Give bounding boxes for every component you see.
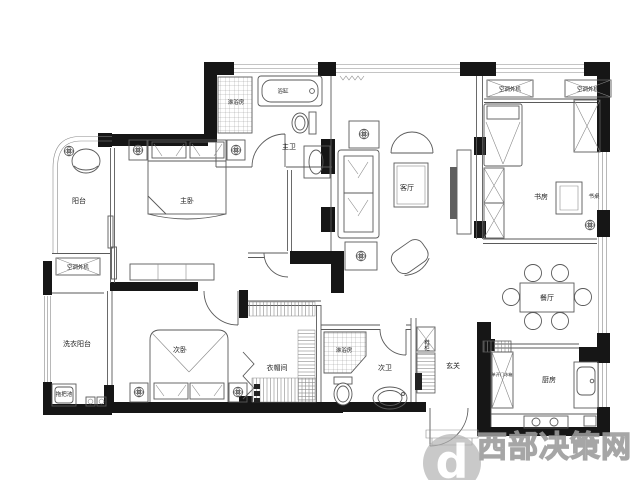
bathtub-drain-icon xyxy=(310,89,315,94)
label-bathtub: 浴缸 xyxy=(277,87,289,95)
label-cloakroom: 衣帽间 xyxy=(267,363,288,372)
living-room xyxy=(338,121,471,281)
window-balcony xyxy=(53,137,112,254)
label-desk: 书桌 xyxy=(588,192,600,200)
faucet-icon xyxy=(402,393,405,396)
flower-icon xyxy=(359,129,369,139)
label-fridge: 单开门冰箱 xyxy=(492,371,513,378)
toilet-tank xyxy=(309,112,316,134)
watermark-text: 西部决策网 xyxy=(477,430,632,465)
faucet-icon xyxy=(590,379,594,383)
label-ac-unit-2: 空调外机 xyxy=(577,85,600,93)
watermark-logo-letter: d xyxy=(436,435,469,480)
label-second-bath: 次卫 xyxy=(378,363,392,372)
burner-icon xyxy=(532,418,540,426)
stove xyxy=(524,416,568,428)
pillow xyxy=(190,383,224,399)
flower-icon xyxy=(233,387,243,397)
flower-icon xyxy=(356,251,366,261)
laundry-balcony xyxy=(52,258,106,406)
dining-chair xyxy=(525,265,542,282)
window-bath-top xyxy=(234,65,318,73)
balcony xyxy=(64,146,100,173)
cloakroom xyxy=(249,302,316,403)
master-bedroom-door xyxy=(264,253,288,277)
label-master-bath: 主卫 xyxy=(282,142,296,151)
dining-chair xyxy=(525,313,542,330)
pillow xyxy=(154,383,188,399)
label-kitchen: 厨房 xyxy=(542,375,556,384)
plant-icon xyxy=(64,146,74,156)
plant-icon xyxy=(585,220,595,230)
hanging-rail xyxy=(249,302,315,316)
window-study-right xyxy=(599,152,607,210)
window-study-top xyxy=(496,65,584,73)
bed-foot xyxy=(148,214,226,219)
window-living-top xyxy=(336,65,460,73)
second-bathroom xyxy=(324,332,407,409)
dresser xyxy=(130,264,214,280)
walls xyxy=(43,62,610,436)
second-bath-door xyxy=(380,329,406,355)
curtain-squiggle xyxy=(340,76,364,80)
armchair xyxy=(391,132,433,153)
label-master-bedroom: 主卧 xyxy=(180,196,194,205)
hanging-rail xyxy=(252,378,316,402)
kitchen-cabinet xyxy=(483,341,511,352)
sofa-cushion xyxy=(344,156,373,193)
second-bedroom xyxy=(130,330,247,402)
drawer-knob xyxy=(254,384,260,389)
small-appliance xyxy=(584,416,596,426)
master-bath-door xyxy=(252,134,285,167)
label-master-shower: 淋浴房 xyxy=(228,98,245,106)
balcony-slider-panel xyxy=(112,247,117,279)
side-table xyxy=(345,242,377,270)
dining-chair xyxy=(503,289,520,306)
label-ac-unit-3: 空调外机 xyxy=(67,263,90,271)
cabinet-dark-panel xyxy=(415,373,422,390)
label-living-room: 客厅 xyxy=(400,183,414,192)
label-second-shower: 淋浴房 xyxy=(336,346,353,354)
label-dining-room: 餐厅 xyxy=(540,293,554,302)
label-second-bedroom: 次卧 xyxy=(173,345,187,354)
label-shoe-cabinet: 鞋柜 xyxy=(423,338,430,352)
study-bed xyxy=(484,104,522,166)
vanity-basin xyxy=(309,150,323,174)
drawer-knob xyxy=(254,398,260,403)
label-balcony: 阳台 xyxy=(72,196,86,205)
study xyxy=(484,80,611,238)
pillow xyxy=(487,106,519,119)
flower-icon xyxy=(134,387,144,397)
dining-chair xyxy=(575,289,592,306)
label-laundry-balcony: 洗衣阳台 xyxy=(63,339,91,348)
floor-plan-image: 阳台 主卧 淋浴房 浴缸 主卫 客厅 空调外机 空调外机 书房 书桌 空调外机 … xyxy=(0,0,640,480)
label-ac-unit-1: 空调外机 xyxy=(499,85,522,93)
side-table xyxy=(349,121,379,148)
window-dining-right xyxy=(599,237,607,333)
window-kitchen-right xyxy=(599,363,607,407)
nightstand xyxy=(227,140,245,160)
second-bedroom-door xyxy=(204,291,238,325)
drawer-knob xyxy=(254,391,260,396)
floor-plan-page: 阳台 主卧 淋浴房 浴缸 主卫 客厅 空调外机 空调外机 书房 书桌 空调外机 … xyxy=(0,0,640,480)
second-bed xyxy=(150,330,228,402)
label-entry: 玄关 xyxy=(446,361,460,370)
burner-icon xyxy=(550,418,558,426)
flower-icon xyxy=(231,145,241,155)
balcony-chair xyxy=(72,149,100,173)
master-bathroom xyxy=(218,76,330,178)
watermark: d 西部决策网 xyxy=(423,430,632,480)
label-study: 书房 xyxy=(534,192,548,201)
window-laundry-left xyxy=(45,296,51,382)
tv-icon xyxy=(450,167,457,219)
flower-icon xyxy=(133,145,143,155)
master-bedroom xyxy=(129,140,245,280)
kitchen-sink xyxy=(577,367,595,395)
dining-chair xyxy=(552,313,569,330)
dining-chair xyxy=(552,265,569,282)
entry xyxy=(415,327,435,393)
armchair xyxy=(388,236,434,281)
tv-cabinet xyxy=(457,150,471,234)
nightstand xyxy=(130,383,148,402)
label-mop-pool: 拖把池 xyxy=(56,390,73,398)
